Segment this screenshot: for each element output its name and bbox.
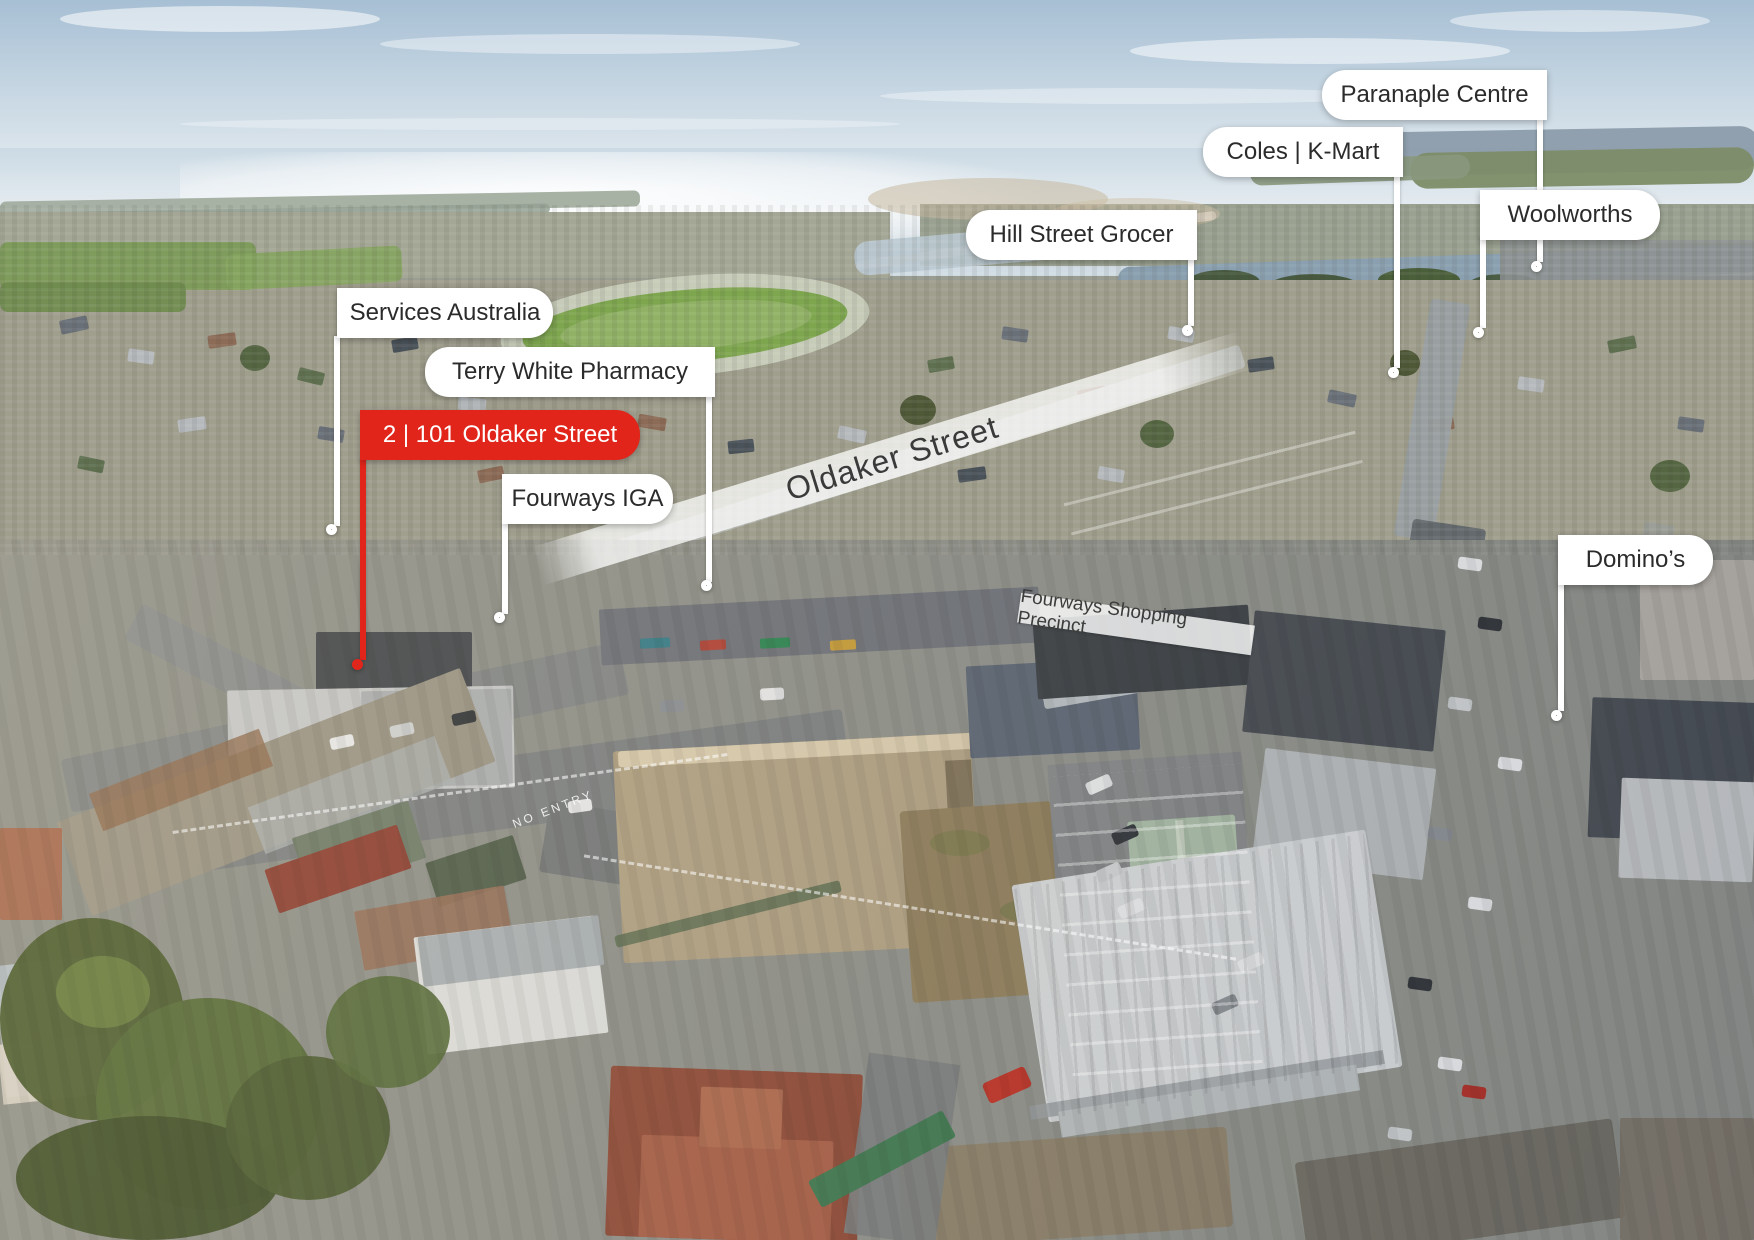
map-pin-subject-property bbox=[352, 659, 363, 670]
scene-shape bbox=[1242, 610, 1446, 751]
scene-shape bbox=[56, 956, 150, 1028]
scene-shape bbox=[1620, 1118, 1754, 1240]
leader-line-fourways-iga bbox=[502, 524, 508, 614]
scene-shape bbox=[1140, 420, 1174, 448]
map-label-subject-property: 2 | 101 Oldaker Street bbox=[360, 410, 640, 460]
map-pin-coles-kmart bbox=[1388, 367, 1399, 378]
scene-shape bbox=[0, 828, 62, 920]
scene-shape bbox=[640, 637, 670, 649]
scene-shape bbox=[0, 280, 1754, 558]
map-pin-dominos bbox=[1551, 710, 1562, 721]
map-label-woolworths: Woolworths bbox=[1480, 190, 1660, 240]
scene-shape bbox=[760, 687, 785, 700]
map-label-terry-white-pharmacy: Terry White Pharmacy bbox=[425, 347, 715, 397]
map-label-services-australia: Services Australia bbox=[337, 288, 553, 338]
map-label-hill-street-grocer: Hill Street Grocer bbox=[966, 210, 1197, 260]
scene-shape bbox=[660, 699, 685, 712]
scene-shape bbox=[638, 1135, 833, 1240]
leader-line-hill-street-grocer bbox=[1188, 260, 1194, 326]
map-pin-paranaple-centre bbox=[1531, 261, 1542, 272]
scene-shape bbox=[1650, 460, 1690, 492]
leader-line-dominos bbox=[1558, 583, 1564, 711]
scene-shape bbox=[930, 830, 990, 856]
map-label-paranaple-centre: Paranaple Centre bbox=[1322, 70, 1547, 120]
map-pin-woolworths bbox=[1473, 327, 1484, 338]
leader-line-woolworths bbox=[1480, 238, 1486, 328]
scene-shape bbox=[1130, 38, 1510, 64]
map-label-fourways-iga: Fourways IGA bbox=[502, 474, 673, 524]
map-pin-terry-white-pharmacy bbox=[701, 580, 712, 591]
leader-line-coles-kmart bbox=[1394, 176, 1400, 368]
scene-shape bbox=[830, 639, 856, 650]
scene-shape bbox=[760, 637, 790, 649]
scene-shape bbox=[699, 1087, 783, 1150]
leader-line-services-australia bbox=[334, 336, 340, 526]
map-pin-fourways-iga bbox=[494, 612, 505, 623]
scene-shape bbox=[60, 6, 380, 32]
map-label-dominos: Domino’s bbox=[1558, 535, 1713, 585]
scene-shape bbox=[180, 118, 900, 130]
scene-shape bbox=[380, 34, 800, 54]
scene-shape bbox=[700, 639, 726, 650]
map-pin-hill-street-grocer bbox=[1182, 325, 1193, 336]
scene-shape bbox=[1618, 778, 1754, 883]
map-pin-services-australia bbox=[326, 524, 337, 535]
leader-line-terry-white-pharmacy bbox=[706, 396, 712, 582]
aerial-location-map: NO ENTRY Oldaker Street Fourways Shoppin… bbox=[0, 0, 1754, 1240]
leader-line-subject-property bbox=[360, 458, 366, 660]
scene-shape bbox=[727, 439, 754, 455]
scene-shape bbox=[0, 282, 186, 312]
scene-shape bbox=[1450, 10, 1710, 32]
map-label-coles-kmart: Coles | K-Mart bbox=[1203, 127, 1403, 177]
scene-shape bbox=[900, 395, 936, 425]
scene-shape bbox=[240, 345, 270, 371]
scene-shape bbox=[326, 976, 450, 1088]
